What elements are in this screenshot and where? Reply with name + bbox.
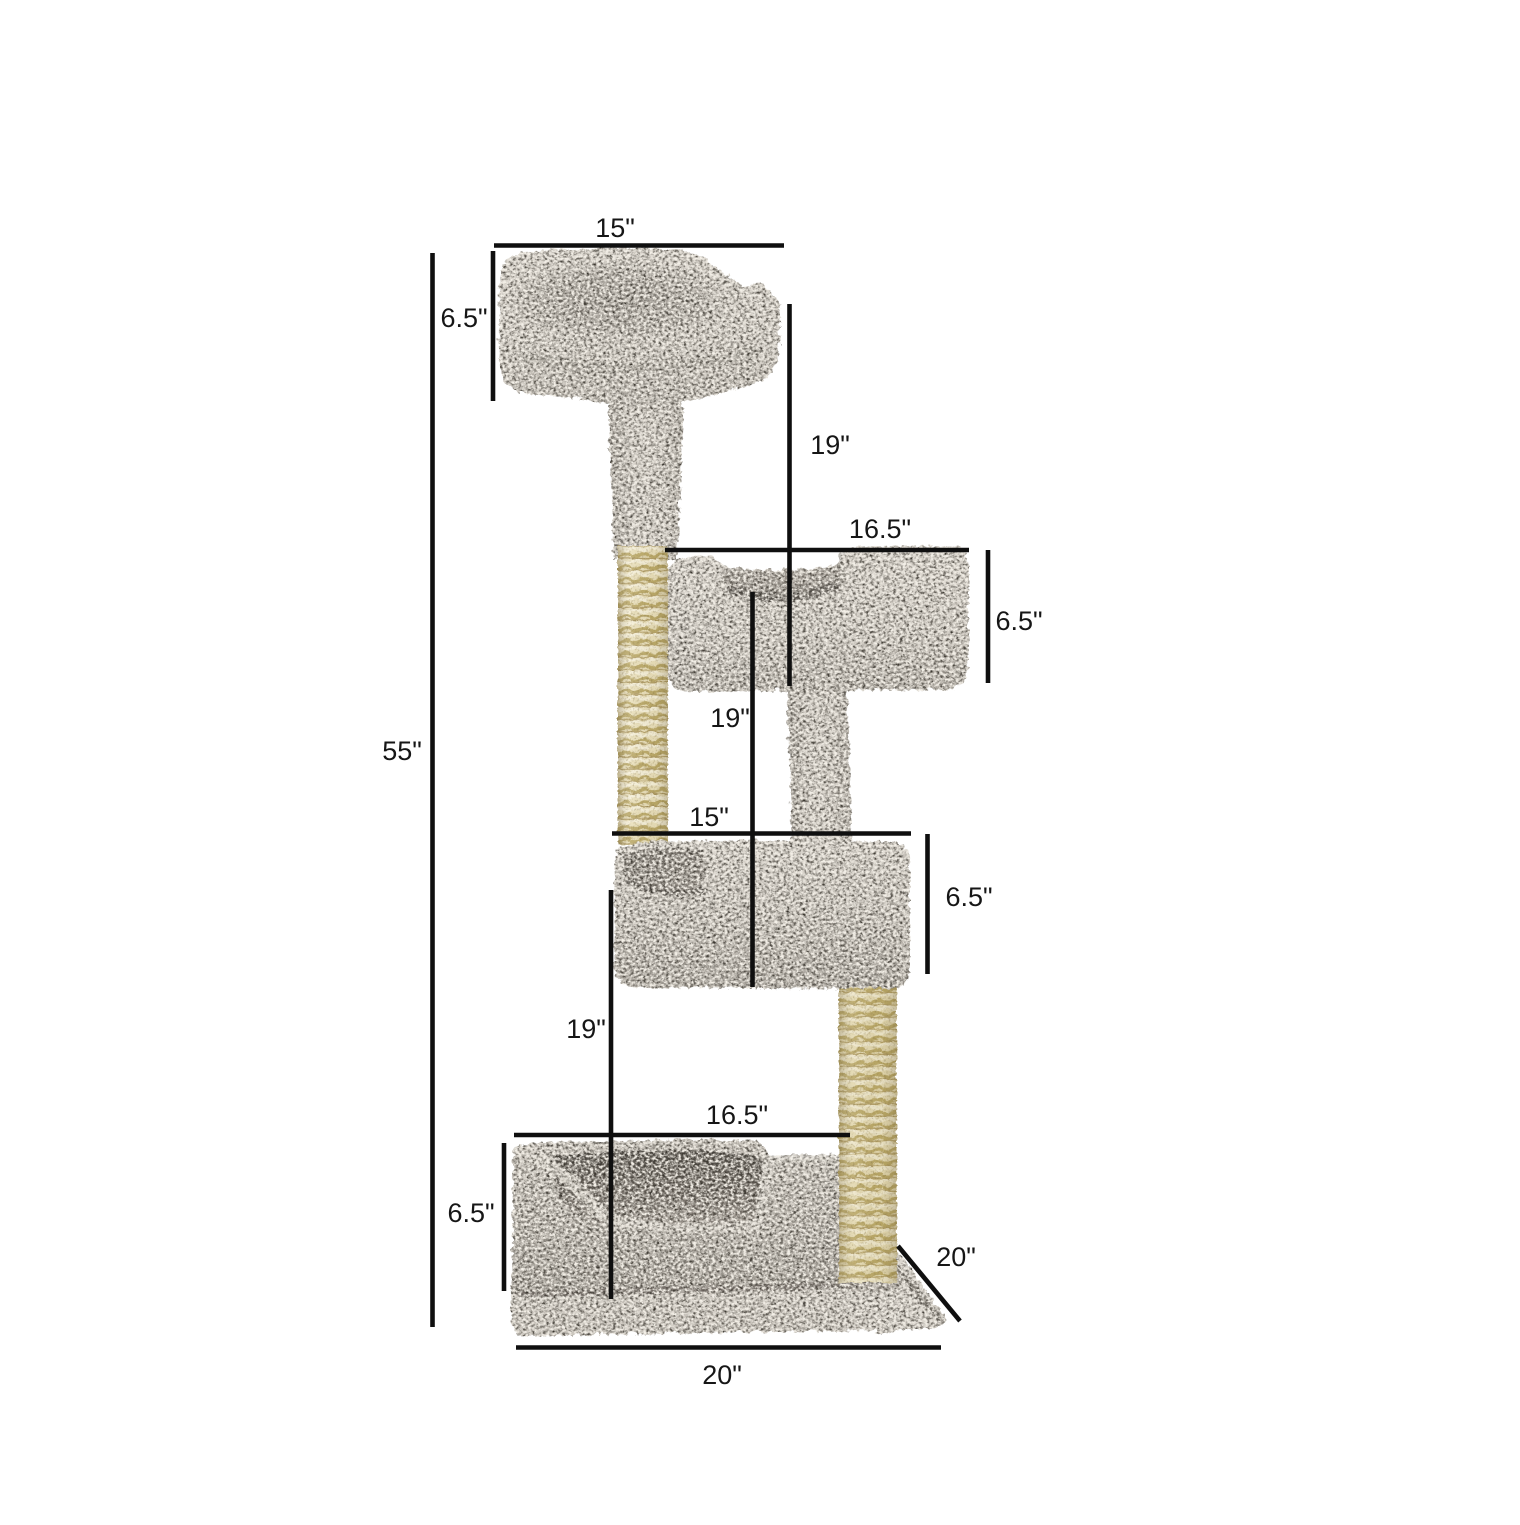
svg-text:6.5": 6.5" [447, 1198, 494, 1228]
svg-text:20": 20" [936, 1242, 976, 1272]
svg-text:15": 15" [689, 802, 729, 832]
svg-text:19": 19" [566, 1014, 606, 1044]
svg-text:20": 20" [702, 1360, 742, 1390]
svg-text:16.5": 16.5" [849, 514, 911, 544]
svg-text:6.5": 6.5" [440, 303, 487, 333]
svg-text:16.5": 16.5" [706, 1100, 768, 1130]
svg-text:55": 55" [382, 736, 422, 766]
svg-text:19": 19" [710, 703, 750, 733]
svg-text:6.5": 6.5" [995, 606, 1042, 636]
svg-text:19": 19" [810, 430, 850, 460]
svg-text:15": 15" [595, 213, 635, 243]
svg-text:6.5": 6.5" [945, 882, 992, 912]
